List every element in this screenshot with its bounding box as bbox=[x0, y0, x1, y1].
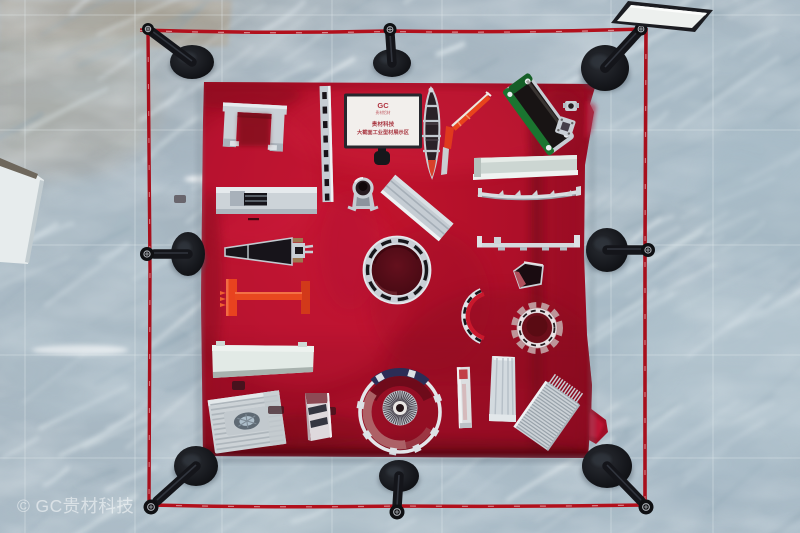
svg-text:© GC贵材科技: © GC贵材科技 bbox=[17, 496, 134, 516]
svg-text:大截面工业型材展示区: 大截面工业型材展示区 bbox=[357, 128, 410, 136]
svg-text:GC: GC bbox=[377, 101, 389, 110]
svg-text:贵材科技: 贵材科技 bbox=[372, 120, 395, 128]
svg-text:贵材铝材: 贵材铝材 bbox=[375, 110, 390, 115]
